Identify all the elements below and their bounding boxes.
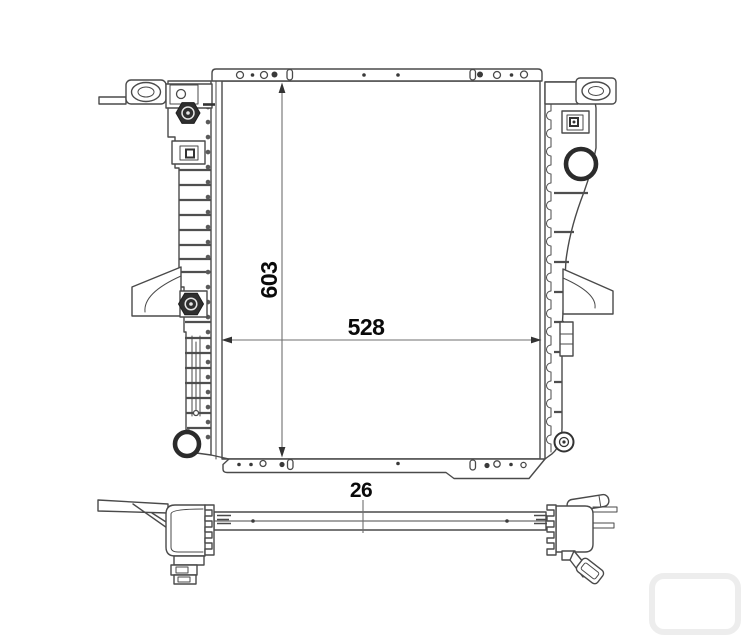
hole: [521, 462, 526, 467]
hole: [521, 71, 528, 78]
hole: [261, 72, 268, 79]
right-tank: [545, 78, 616, 459]
sensor-fitting: [172, 141, 205, 164]
hole: [396, 73, 400, 77]
left-castellation: [205, 505, 214, 555]
hole: [477, 72, 483, 78]
hole: [494, 461, 500, 467]
inlet-pipe-ring: [566, 149, 596, 179]
left-bracket-wing: [132, 267, 181, 316]
right-drain-fitting: [555, 433, 574, 452]
right-end-tank-top: [547, 494, 617, 586]
hole: [484, 463, 489, 468]
hole: [510, 73, 514, 77]
width-dimension-label: 528: [348, 314, 386, 340]
hole: [279, 462, 284, 467]
front-view: [99, 69, 616, 479]
slot-hole: [470, 460, 476, 470]
right-castellation: [547, 505, 556, 555]
hole: [251, 73, 255, 77]
bracket-arm-bar: [98, 500, 168, 513]
outlet-pipe-ring: [175, 432, 199, 456]
hole: [509, 463, 513, 467]
hole: [272, 72, 278, 78]
radiator-technical-drawing: 603 528 26: [0, 0, 747, 644]
right-tank-top-body: [556, 506, 593, 552]
band-dot: [505, 519, 509, 523]
hole: [237, 72, 244, 79]
band-dot: [251, 519, 255, 523]
drain-hex-fitting: [179, 291, 208, 317]
height-dimension-label: 603: [256, 262, 282, 299]
hole: [237, 463, 241, 467]
bolt-hole: [177, 90, 186, 99]
drawing-canvas: 603 528 26: [0, 0, 747, 644]
right-sensor-fitting: [562, 111, 589, 133]
hole: [249, 463, 253, 467]
hole: [396, 462, 400, 466]
right-bracket-wing: [563, 269, 613, 314]
slot-hole: [470, 70, 476, 81]
slot-hole: [288, 460, 294, 470]
hole: [494, 72, 501, 79]
right-mounting-bracket: [545, 78, 616, 104]
cooler-fitting: [560, 322, 573, 356]
depth-dimension-label: 26: [350, 479, 372, 502]
top-view: [98, 494, 617, 586]
faint-watermark: [652, 576, 738, 632]
hole: [260, 461, 266, 467]
right-bracket-rails: [593, 507, 617, 528]
drain-stack: [171, 556, 204, 584]
left-tank: [99, 80, 229, 459]
right-tank-body: [545, 82, 596, 459]
left-bracket-tab: [99, 97, 126, 104]
hole: [362, 73, 366, 77]
left-end-tank-top: [98, 500, 214, 584]
slot-hole: [287, 70, 293, 81]
